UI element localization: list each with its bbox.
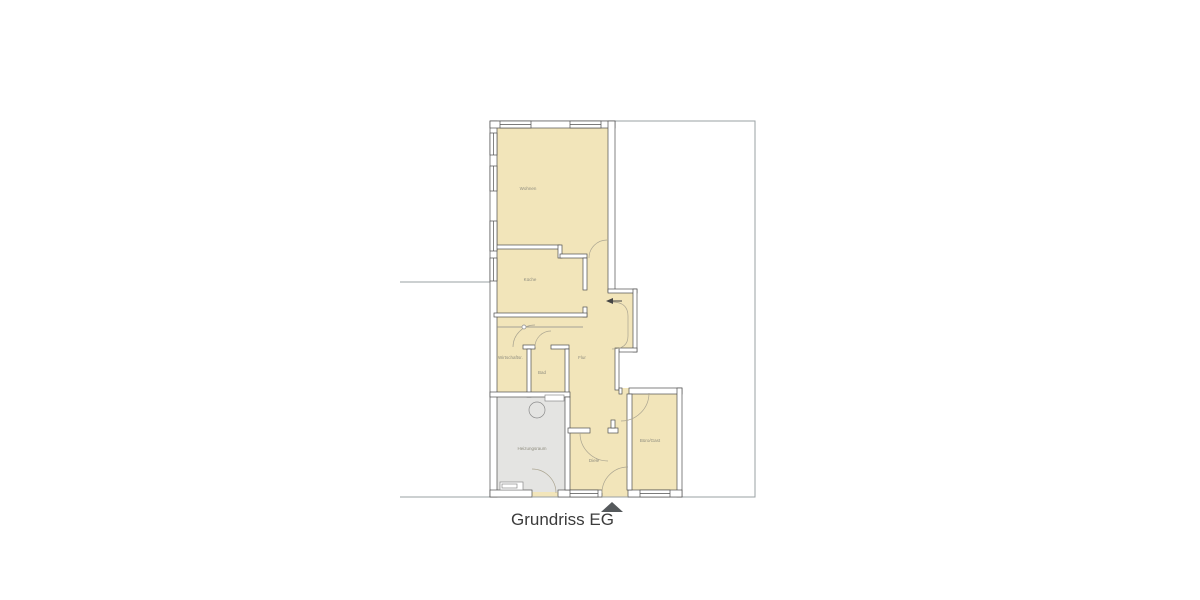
window-icon (490, 221, 497, 251)
window-icon (640, 490, 670, 497)
plan-title: Grundriss EG (511, 510, 614, 529)
window-icon (570, 490, 598, 497)
floor-plan-canvas: Wohnen Küche Wirtschaftsr. Bad Flur Heiz… (0, 0, 1200, 600)
room-label-heizungsraum: Heizungsraum (517, 446, 546, 451)
window-icon (570, 121, 601, 128)
equipment-box (545, 395, 564, 401)
room-label-diele: Diele (589, 458, 600, 463)
window-icon (490, 133, 497, 155)
window-icon (490, 258, 497, 281)
window-icon (500, 121, 531, 128)
room-label-buero-gast: Büro/Gast (640, 438, 661, 443)
north-arrow-icon (601, 502, 623, 512)
heizungsraum-area (495, 394, 568, 492)
floor-plan-page: Wohnen Küche Wirtschaftsr. Bad Flur Heiz… (0, 0, 1200, 600)
room-label-wohnen: Wohnen (520, 186, 537, 191)
room-label-bad: Bad (538, 370, 547, 375)
window-icon (490, 166, 497, 191)
cabinet-box (500, 482, 523, 490)
room-label-wirtschaftsraum: Wirtschaftsr. (498, 355, 523, 360)
pass-through-dot (522, 325, 526, 329)
room-label-flur: Flur (578, 355, 586, 360)
room-label-kueche: Küche (524, 277, 537, 282)
